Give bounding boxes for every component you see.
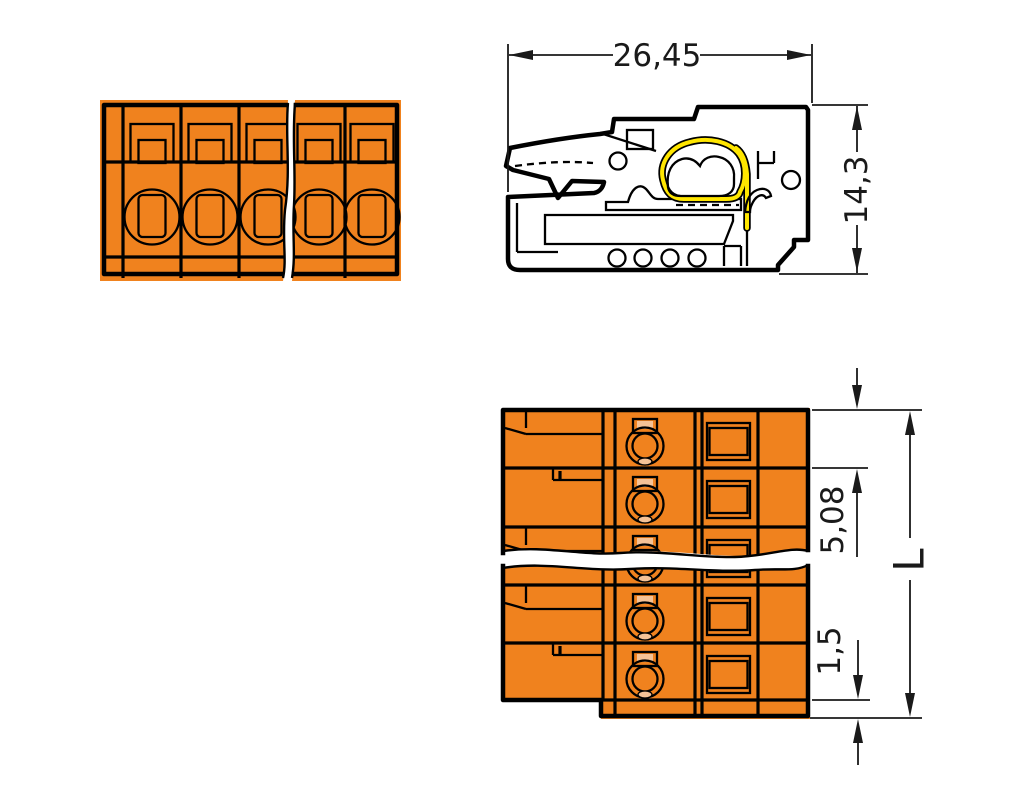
dim-pitch: 5,08 <box>812 368 922 557</box>
side-view <box>506 107 808 270</box>
break-line <box>292 103 295 278</box>
dim-offset: 1,5 <box>810 626 922 765</box>
side-hole <box>782 171 800 189</box>
arrow-left-icon <box>509 50 533 60</box>
dim-width-label: 26,45 <box>613 38 702 74</box>
side-hole <box>610 153 627 170</box>
arrow-down-icon <box>852 385 862 409</box>
dim-length-label: L <box>885 548 934 572</box>
busbar <box>545 215 733 244</box>
arrow-up-icon <box>852 106 862 130</box>
dim-offset-label: 1,5 <box>812 626 848 675</box>
spring-cavity <box>668 156 734 196</box>
latch-dashed-line <box>515 162 593 166</box>
dim-length: L <box>885 411 934 717</box>
dim-pitch-label: 5,08 <box>815 485 851 554</box>
front-view-body <box>100 100 401 281</box>
arrow-down-icon <box>905 693 915 717</box>
dim-height-label: 14,3 <box>839 155 875 224</box>
bottom-view-body <box>503 408 810 720</box>
strain-relief-circles <box>609 250 706 267</box>
arrow-right-icon <box>787 50 811 60</box>
arrow-up-icon <box>852 469 862 493</box>
front-view <box>100 100 401 281</box>
arrow-down-icon <box>853 675 863 699</box>
bottom-view <box>503 408 810 720</box>
arrow-up-icon <box>905 411 915 435</box>
arrow-down-icon <box>852 248 862 272</box>
technical-drawing: 26,45 14,3 5,08 1,5 <box>0 0 1013 790</box>
arrow-up-icon <box>853 719 863 743</box>
